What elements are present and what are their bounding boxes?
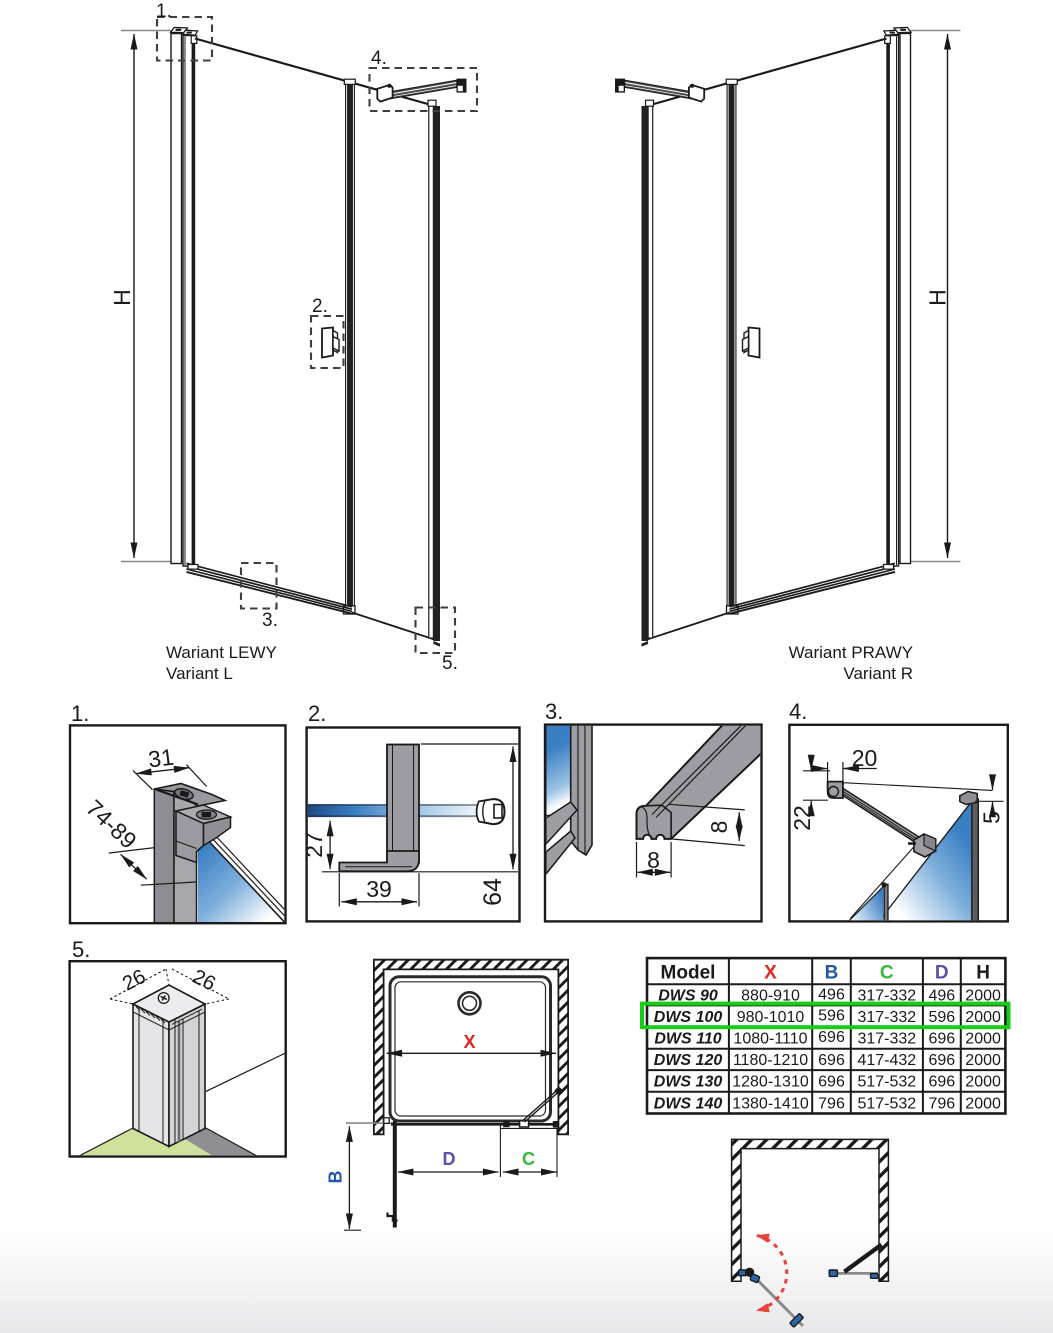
svg-text:Wariant LEWY: Wariant LEWY	[166, 643, 277, 662]
svg-text:22: 22	[789, 805, 815, 831]
svg-text:1180-1210: 1180-1210	[733, 1052, 808, 1069]
svg-text:2.: 2.	[312, 296, 328, 317]
svg-text:1.: 1.	[71, 701, 89, 726]
svg-text:DWS 110: DWS 110	[654, 1031, 721, 1048]
svg-text:B: B	[825, 962, 839, 983]
svg-text:696: 696	[818, 1029, 845, 1046]
svg-text:DWS 120: DWS 120	[654, 1052, 723, 1069]
svg-text:1280-1310: 1280-1310	[732, 1074, 809, 1091]
svg-text:31: 31	[147, 744, 176, 773]
svg-text:2000: 2000	[965, 1074, 1001, 1091]
svg-text:C: C	[880, 962, 894, 983]
svg-text:27: 27	[301, 832, 327, 858]
svg-text:Variant R: Variant R	[843, 664, 913, 683]
svg-text:3.: 3.	[262, 610, 278, 631]
svg-text:B: B	[326, 1171, 346, 1184]
svg-text:696: 696	[928, 1031, 955, 1048]
svg-text:X: X	[463, 1032, 475, 1052]
svg-text:D: D	[443, 1149, 456, 1169]
svg-text:2000: 2000	[965, 1009, 1001, 1026]
svg-text:317-332: 317-332	[857, 1031, 916, 1048]
svg-text:DWS 130: DWS 130	[654, 1074, 723, 1091]
svg-text:596: 596	[928, 1009, 955, 1026]
svg-text:20: 20	[852, 745, 878, 771]
svg-text:696: 696	[928, 1052, 955, 1069]
svg-text:2000: 2000	[965, 1095, 1001, 1112]
svg-text:H: H	[976, 962, 990, 983]
svg-text:517-532: 517-532	[857, 1095, 916, 1112]
svg-text:796: 796	[818, 1095, 845, 1112]
svg-text:DWS 140: DWS 140	[654, 1095, 723, 1112]
svg-text:8: 8	[706, 821, 732, 834]
svg-text:1.: 1.	[156, 1, 172, 22]
svg-text:Model: Model	[661, 962, 716, 983]
svg-text:317-332: 317-332	[857, 1009, 916, 1026]
svg-text:5: 5	[979, 811, 1005, 824]
svg-text:696: 696	[928, 1074, 955, 1091]
svg-text:4.: 4.	[789, 699, 807, 724]
svg-text:D: D	[935, 962, 949, 983]
svg-text:4.: 4.	[371, 48, 387, 69]
svg-text:Variant L: Variant L	[166, 664, 233, 683]
svg-text:1080-1110: 1080-1110	[733, 1031, 807, 1048]
svg-text:H: H	[925, 289, 951, 306]
svg-text:796: 796	[928, 1095, 955, 1112]
svg-text:8: 8	[647, 847, 660, 873]
svg-text:2000: 2000	[965, 1052, 1001, 1069]
svg-text:5.: 5.	[72, 937, 90, 962]
svg-text:1380-1410: 1380-1410	[732, 1095, 809, 1112]
svg-text:2000: 2000	[965, 1031, 1001, 1048]
svg-text:980-1010: 980-1010	[737, 1009, 805, 1026]
svg-text:596: 596	[818, 1008, 845, 1025]
svg-text:64: 64	[479, 878, 507, 906]
svg-text:696: 696	[818, 1074, 845, 1091]
svg-text:DWS 100: DWS 100	[654, 1009, 723, 1026]
svg-text:Wariant PRAWY: Wariant PRAWY	[789, 643, 913, 662]
svg-text:X: X	[764, 962, 777, 983]
svg-text:H: H	[109, 289, 135, 306]
svg-text:2.: 2.	[308, 701, 326, 726]
svg-text:3.: 3.	[545, 699, 563, 724]
svg-text:C: C	[522, 1149, 535, 1169]
svg-text:696: 696	[818, 1052, 845, 1069]
svg-text:417-432: 417-432	[857, 1052, 916, 1069]
svg-text:496: 496	[818, 986, 845, 1003]
svg-text:517-532: 517-532	[857, 1074, 916, 1091]
svg-text:39: 39	[366, 876, 392, 902]
svg-text:5.: 5.	[442, 653, 458, 674]
